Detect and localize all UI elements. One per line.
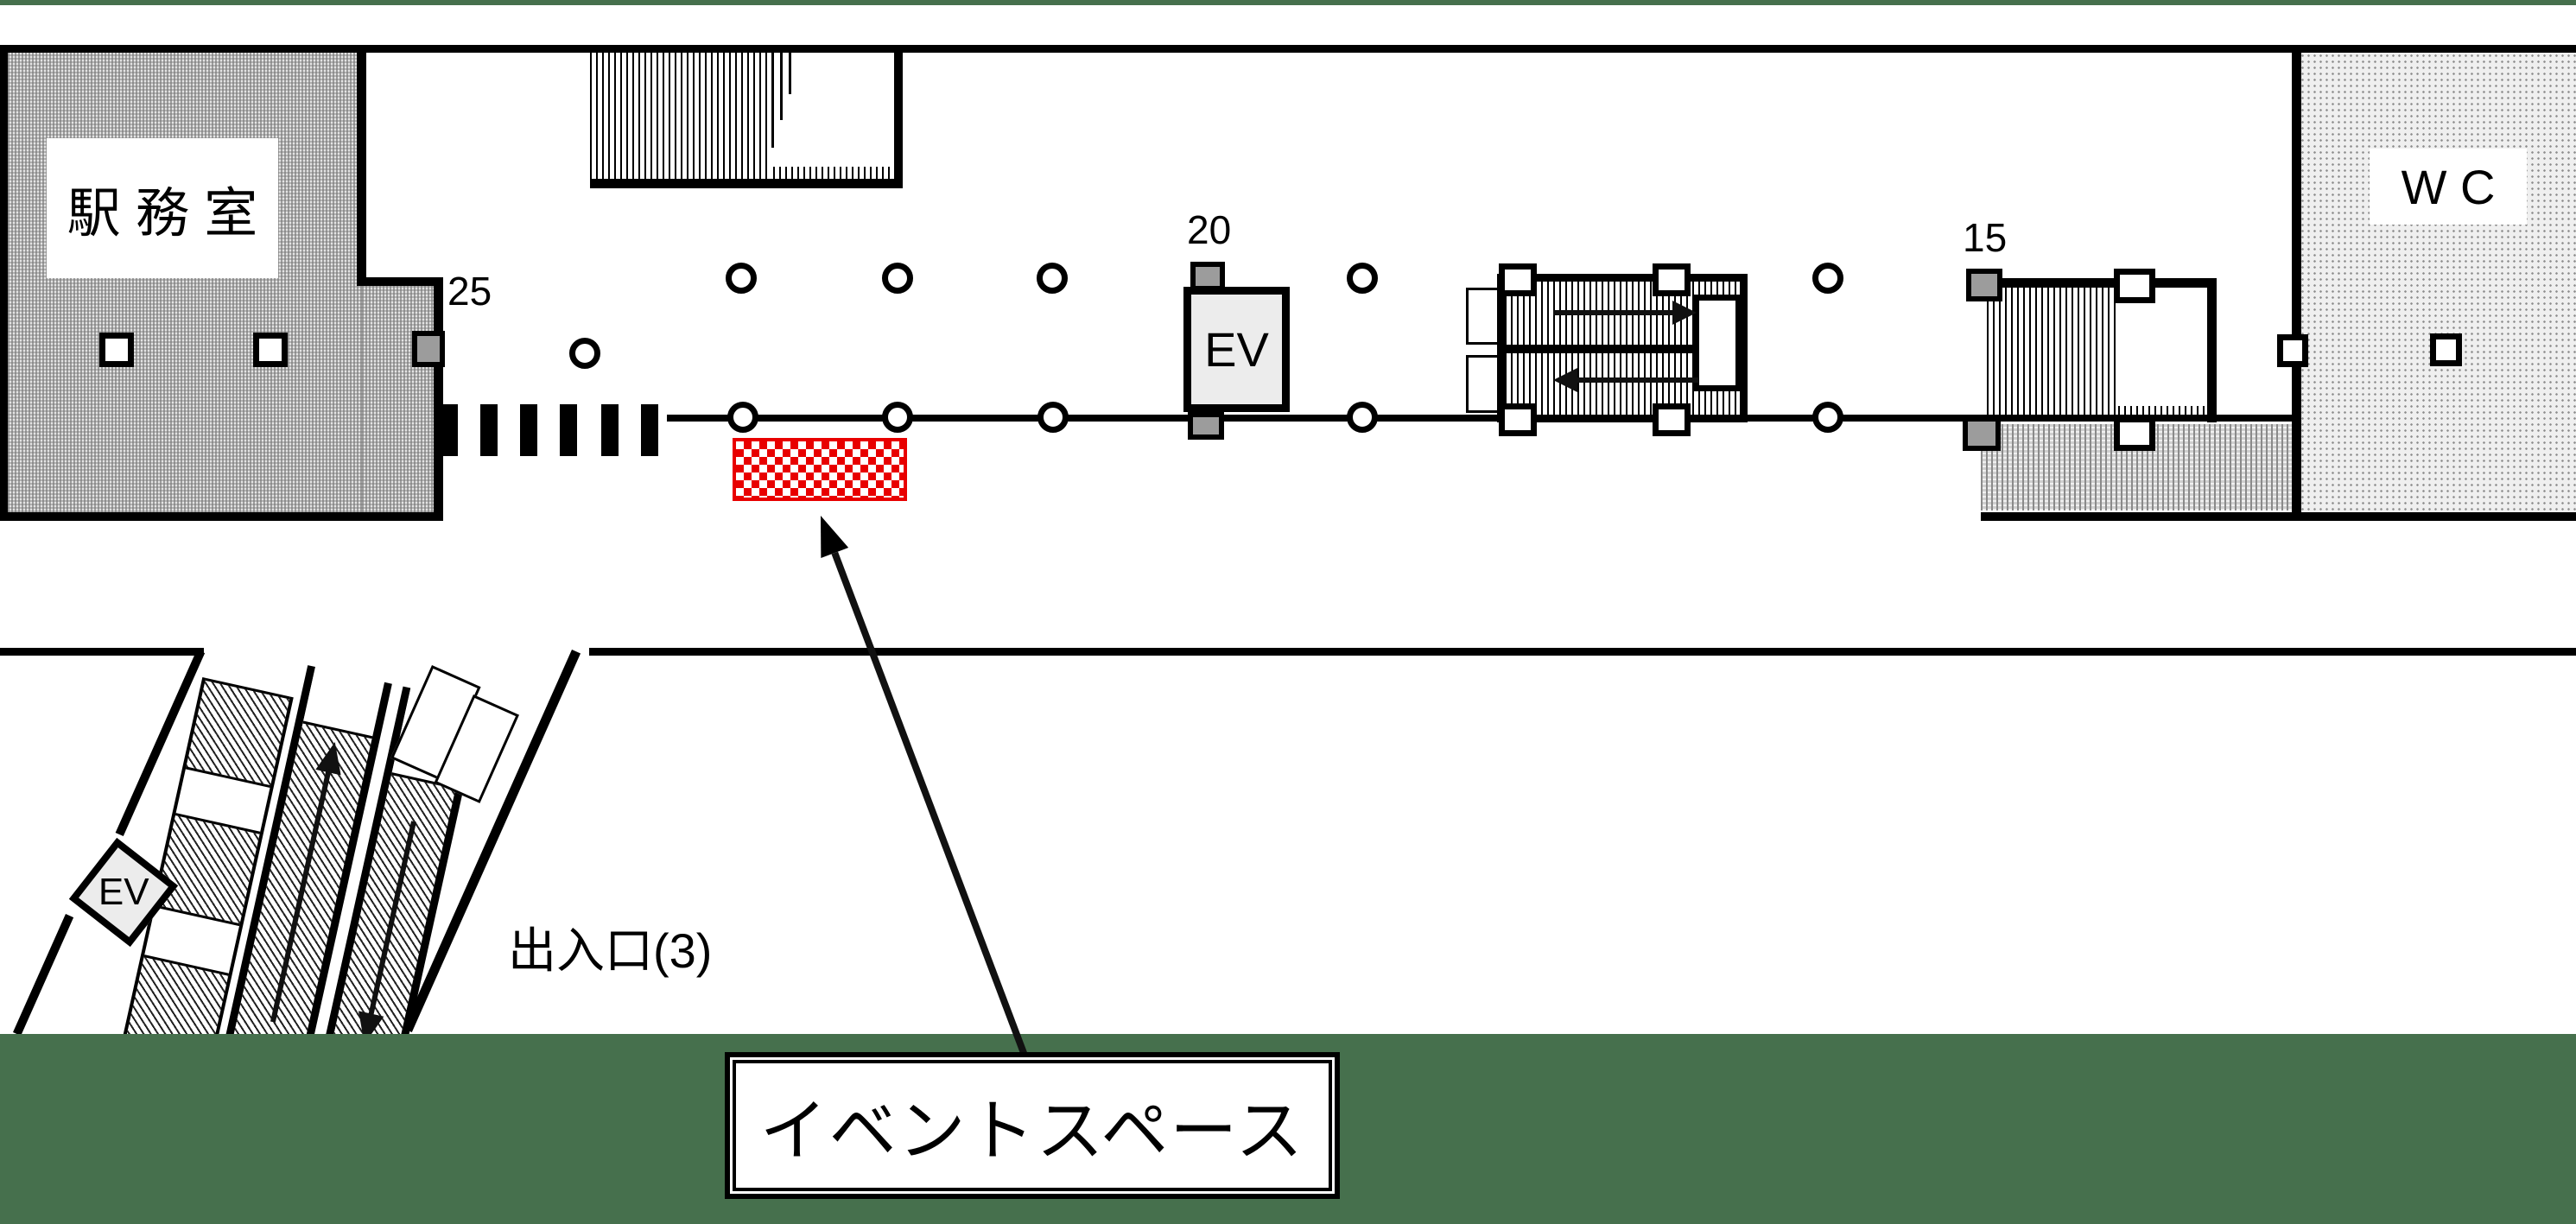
- office-pillar-2: [253, 333, 288, 367]
- station-floor-plan: 駅 務 室 25 20 EV 15: [0, 0, 2576, 1224]
- station-office-label: 駅 務 室: [67, 169, 257, 247]
- wall-bottom-right: [1981, 512, 2576, 521]
- elevator-label: EV: [1204, 321, 1269, 377]
- wc-inner-pillar: [2430, 333, 2462, 366]
- escalator-corner-post: [1499, 403, 1537, 436]
- pillar-circle-on-line: [882, 402, 913, 433]
- office-pillar-1: [99, 333, 134, 367]
- pillar-circle-on-line: [1347, 402, 1378, 433]
- stair15-right-wall: [2207, 278, 2217, 422]
- annotation-arrow-shaft: [832, 552, 1028, 1056]
- entrance-wall-below-ev: [13, 914, 73, 1036]
- wc-wall-pillar: [2277, 334, 2308, 367]
- ticket-gate-bar: [560, 404, 577, 456]
- wall-office-notch-horizontal: [357, 277, 443, 286]
- pillar-circle: [726, 263, 757, 294]
- upper-stairs-fade-line: [771, 53, 774, 148]
- walkway-left-arrow-shaft: [1577, 377, 1698, 383]
- entrance-elevator-label: EV: [98, 871, 149, 914]
- pillar-under-elevator: [1188, 412, 1224, 440]
- event-space-marker: [733, 438, 907, 501]
- event-space-label: イベントスペース: [760, 1077, 1305, 1174]
- pillar-circle: [882, 263, 913, 294]
- ticket-gate-bar: [641, 404, 658, 456]
- upper-stairs-hatch: [590, 53, 769, 179]
- ticket-gate-bar: [441, 404, 458, 456]
- wall-top: [0, 45, 2576, 53]
- elevator-box: EV: [1183, 287, 1290, 412]
- event-space-annotation-arrow: [806, 511, 1038, 1060]
- event-space-callout-inner: イベントスペース: [733, 1060, 1332, 1191]
- pillar-circle-on-line: [727, 402, 758, 433]
- ticket-gate-bar: [520, 404, 537, 456]
- escalator-landing: [1693, 295, 1742, 391]
- top-green-bar: [0, 0, 2576, 5]
- pillar-circle-on-line: [1812, 402, 1843, 433]
- pillar-20-label: 20: [1187, 210, 1231, 250]
- stair15-bottom-post: [2114, 416, 2155, 451]
- escalator-corner-post: [1653, 263, 1691, 296]
- pillar-15-marker: [1966, 269, 2002, 301]
- pillar-25-marker: [412, 331, 445, 367]
- pillar-25-label: 25: [447, 271, 492, 311]
- pillar-circle-free: [569, 338, 600, 369]
- stair-tread-block: [186, 678, 290, 788]
- pillar-circle: [1347, 263, 1378, 294]
- upper-stairs-bottom-wall: [590, 179, 903, 188]
- ticket-gate-bar: [601, 404, 619, 456]
- pillar-15-label: 15: [1963, 218, 2007, 257]
- station-office-area: [8, 53, 362, 512]
- pillar-circle: [1037, 263, 1068, 294]
- stair-tread-block: [155, 813, 260, 926]
- wall-wc-left: [2292, 49, 2301, 521]
- wc-label: W C: [2402, 159, 2496, 215]
- stair15-lower-gray-pillar: [1963, 416, 2001, 451]
- pillar-circle: [1812, 263, 1843, 294]
- pillar-circle-on-line: [1037, 402, 1069, 433]
- walkway-left-arrow-head-icon: [1553, 368, 1577, 392]
- event-space-callout-box: イベントスペース: [725, 1052, 1340, 1199]
- stair15-top-wall: [1985, 278, 2217, 288]
- escalator-corner-post: [1653, 403, 1691, 436]
- exit-3-label: 出入口(3): [508, 912, 712, 982]
- annotation-arrow-head-icon: [807, 511, 848, 558]
- wall-office-notch-vertical: [357, 49, 366, 285]
- station-office-step-area: [362, 282, 435, 512]
- station-office-label-box: 駅 務 室: [47, 138, 278, 278]
- wall-left: [0, 45, 8, 521]
- ticket-gate-bar: [480, 404, 498, 456]
- stair15-hatch: [1987, 288, 2118, 417]
- stair15-top-post: [2114, 269, 2155, 303]
- wc-area: [2300, 53, 2576, 512]
- wall-lower-left: [0, 648, 204, 656]
- walkway-right-arrow-head-icon: [1672, 301, 1697, 325]
- upper-stairs-fade-line: [780, 53, 783, 120]
- wc-label-box: W C: [2370, 149, 2527, 225]
- escalator-corner-post: [1499, 263, 1537, 296]
- upper-stairs-right-wall: [894, 53, 903, 188]
- wall-office-step-vertical: [434, 277, 443, 521]
- upper-stairs-ticks: [773, 167, 894, 179]
- wall-office-bottom: [0, 512, 443, 521]
- walkway-right-arrow-shaft: [1553, 310, 1674, 315]
- upper-stairs-fade-line: [789, 53, 791, 94]
